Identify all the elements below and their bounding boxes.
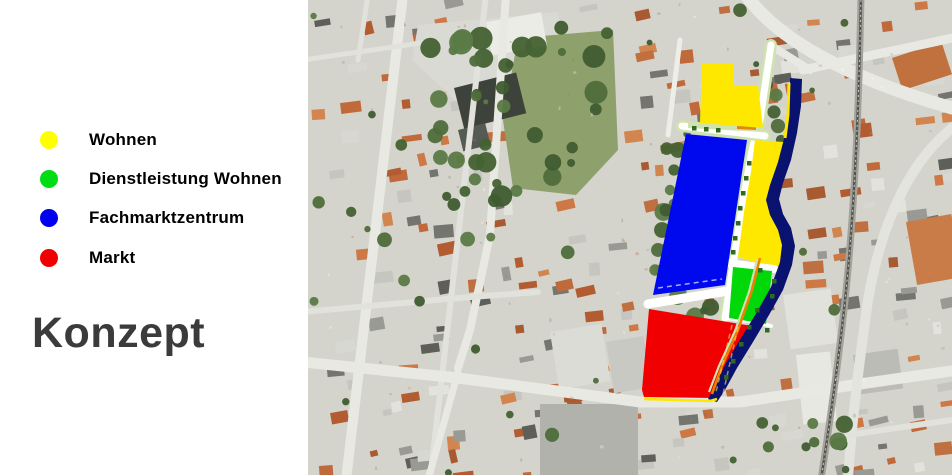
- aerial-map: [308, 0, 952, 475]
- legend-item: Markt: [40, 248, 135, 267]
- legend-item-label: Fachmarktzentrum: [89, 208, 244, 228]
- legend-color-dot: [40, 170, 58, 188]
- slide: WohnenDienstleistung WohnenFachmarktzent…: [0, 0, 952, 475]
- legend-item: Wohnen: [40, 130, 157, 149]
- legend-item: Dienstleistung Wohnen: [40, 169, 282, 188]
- legend-item-label: Wohnen: [89, 130, 157, 150]
- legend-color-dot: [40, 249, 58, 267]
- legend-item-label: Dienstleistung Wohnen: [89, 169, 282, 189]
- map-canvas: [308, 0, 952, 475]
- legend-item-label: Markt: [89, 248, 135, 268]
- legend-item: Fachmarktzentrum: [40, 208, 244, 227]
- legend-color-dot: [40, 209, 58, 227]
- page-title: Konzept: [32, 312, 205, 355]
- legend-color-dot: [40, 131, 58, 149]
